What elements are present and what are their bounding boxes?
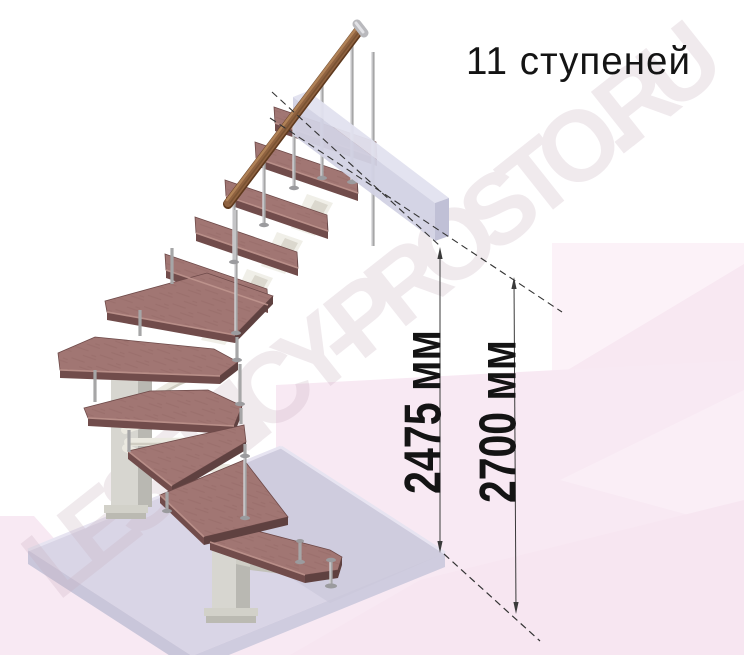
svg-text:11 ступеней: 11 ступеней (466, 40, 690, 83)
svg-text:2475 мм: 2475 мм (394, 330, 452, 494)
svg-text:2700 мм: 2700 мм (469, 340, 527, 503)
